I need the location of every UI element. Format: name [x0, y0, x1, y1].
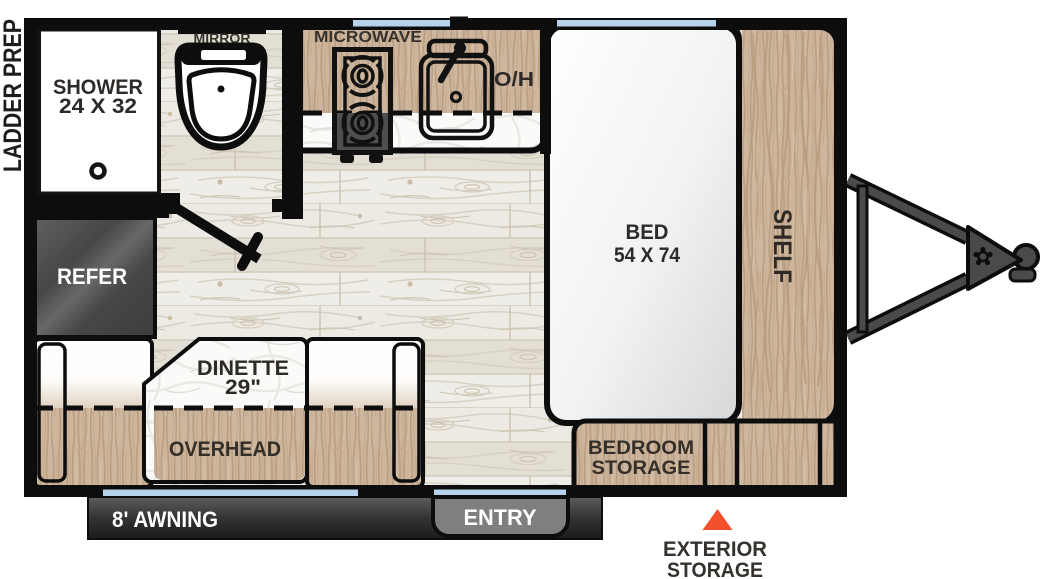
svg-text:24 X 32: 24 X 32	[59, 95, 137, 118]
svg-text:LADDER PREP: LADDER PREP	[0, 19, 27, 172]
svg-text:SHELF: SHELF	[768, 209, 796, 283]
svg-text:54 X 74: 54 X 74	[614, 244, 680, 267]
svg-text:MICROWAVE: MICROWAVE	[314, 29, 422, 46]
svg-text:OVERHEAD: OVERHEAD	[169, 438, 281, 461]
svg-text:O/H: O/H	[494, 69, 534, 91]
svg-text:BED: BED	[626, 221, 669, 244]
svg-text:STORAGE: STORAGE	[667, 559, 763, 579]
svg-text:8' AWNING: 8' AWNING	[112, 507, 218, 532]
svg-text:BEDROOM: BEDROOM	[588, 437, 694, 459]
svg-text:ENTRY: ENTRY	[464, 505, 537, 530]
svg-text:REFER: REFER	[57, 264, 127, 289]
svg-text:STORAGE: STORAGE	[592, 457, 691, 479]
svg-text:EXTERIOR: EXTERIOR	[663, 538, 767, 561]
svg-text:29": 29"	[225, 376, 261, 399]
